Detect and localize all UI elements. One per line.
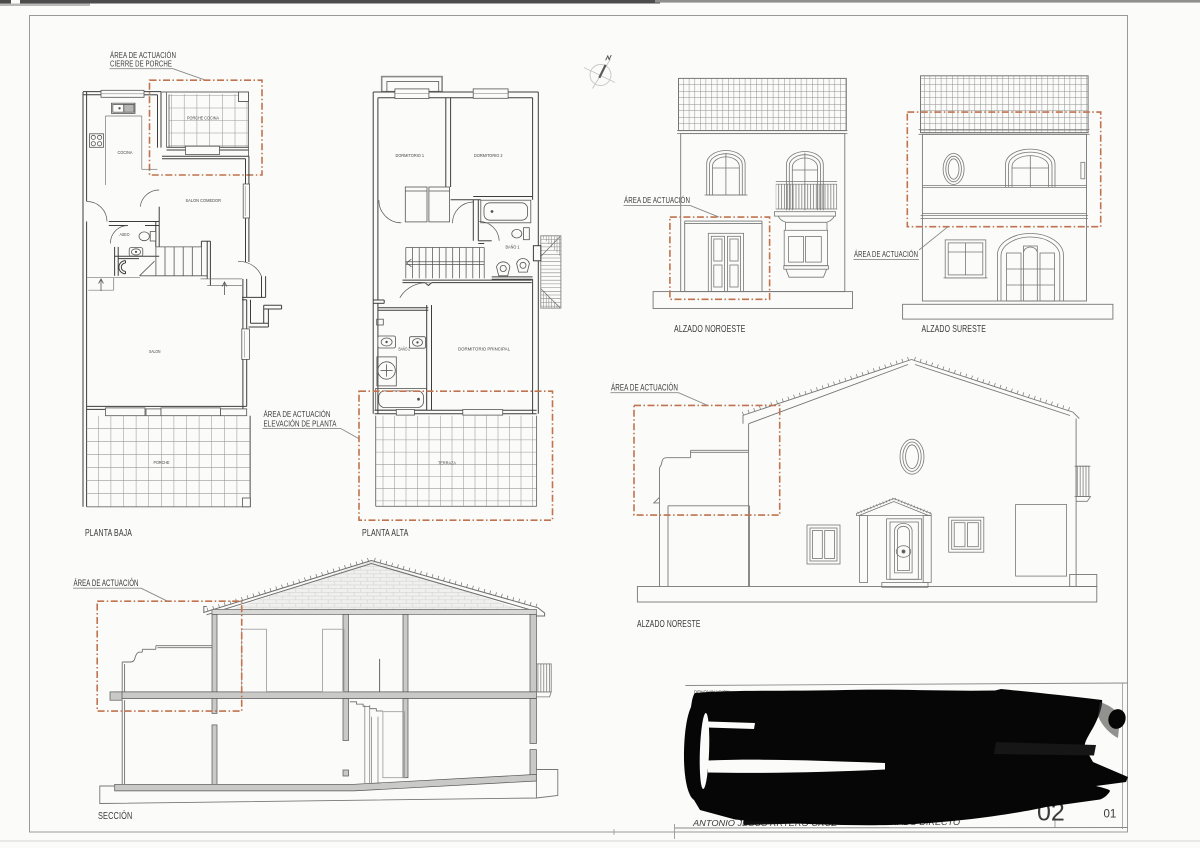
svg-text:CIERRE DE PORCHE: CIERRE DE PORCHE — [110, 60, 172, 69]
svg-text:PORCHE: PORCHE — [154, 460, 170, 465]
svg-text:ASEO: ASEO — [120, 232, 130, 237]
svg-text:ÁREA DE ACTUACIÓN: ÁREA DE ACTUACIÓN — [74, 578, 139, 589]
svg-text:SALON: SALON — [149, 349, 161, 354]
svg-text:ÁREA DE ACTUACIÓN: ÁREA DE ACTUACIÓN — [264, 410, 331, 419]
svg-text:ÁREA DE ACTUACIÓN: ÁREA DE ACTUACIÓN — [854, 250, 918, 259]
svg-text:01: 01 — [1104, 809, 1117, 821]
svg-text:PORCHE COCINA: PORCHE COCINA — [187, 116, 220, 121]
svg-text:ALZADO NOROESTE: ALZADO NOROESTE — [674, 323, 746, 335]
svg-text:BAÑO 1: BAÑO 1 — [506, 244, 520, 250]
svg-text:DORMITORIO 1: DORMITORIO 1 — [396, 153, 425, 158]
svg-text:SALON COMEDOR: SALON COMEDOR — [186, 198, 222, 203]
svg-text:ALZADO SURESTE: ALZADO SURESTE — [922, 323, 987, 335]
svg-text:ALZADO NORESTE: ALZADO NORESTE — [637, 618, 701, 630]
svg-text:DORMITORIO 2: DORMITORIO 2 — [474, 153, 503, 158]
svg-text:ÁREA DE ACTUACIÓN: ÁREA DE ACTUACIÓN — [624, 196, 690, 205]
svg-text:ÁREA DE ACTUACIÓN: ÁREA DE ACTUACIÓN — [611, 383, 678, 394]
svg-text:TERRAZA: TERRAZA — [438, 461, 457, 466]
svg-text:COCINA: COCINA — [118, 150, 134, 155]
svg-text:DORMITORIO PRINCIPAL: DORMITORIO PRINCIPAL — [458, 347, 510, 352]
svg-text:SECCIÓN: SECCIÓN — [98, 809, 133, 822]
svg-text:ELEVACIÓN DE PLANTA: ELEVACIÓN DE PLANTA — [264, 419, 337, 428]
svg-text:PLANTA ALTA: PLANTA ALTA — [362, 527, 409, 539]
svg-text:BAÑO 2: BAÑO 2 — [399, 346, 411, 352]
svg-text:PLANTA BAJA: PLANTA BAJA — [85, 527, 132, 539]
